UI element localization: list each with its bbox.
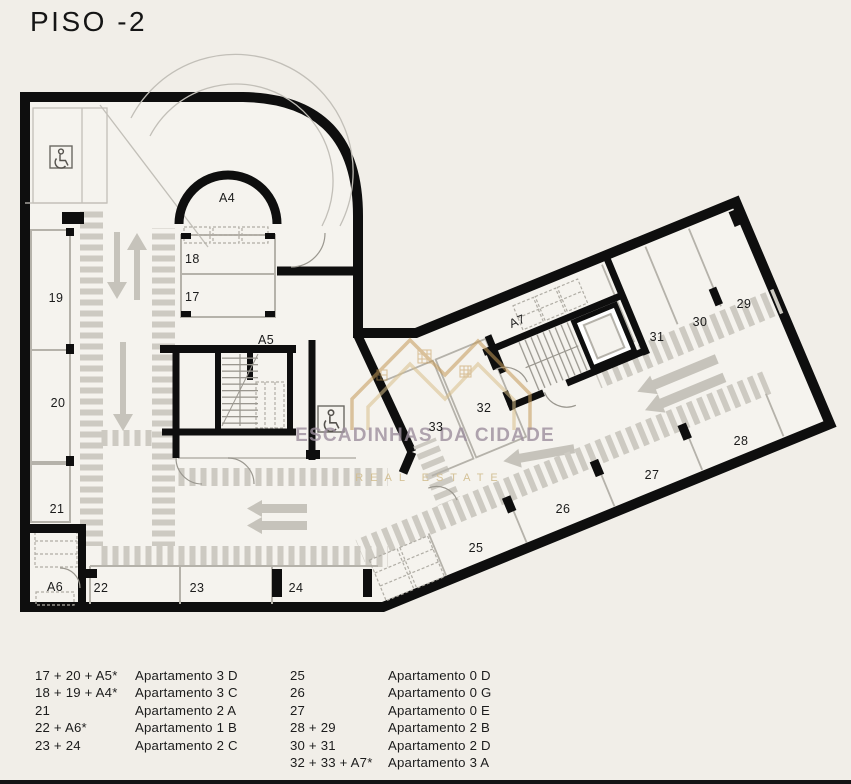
spot-label-19: 19 (49, 291, 64, 305)
spot-label-27: 27 (645, 468, 660, 482)
spot-label-17: 17 (185, 290, 200, 304)
legend-row: 27 Apartamento 0 E (290, 702, 491, 719)
spot-label-29: 29 (737, 297, 752, 311)
legend-row: 32 + 33 + A7* Apartamento 3 A (290, 754, 491, 771)
spot-label-23: 23 (190, 581, 205, 595)
legend-apartment: Apartamento 0 G (388, 684, 491, 701)
legend-row: 21 Apartamento 2 A (35, 702, 238, 719)
legend-row: 22 + A6* Apartamento 1 B (35, 719, 238, 736)
legend-apartment: Apartamento 0 D (388, 667, 491, 684)
spot-label-31: 31 (650, 330, 665, 344)
spot-label-20: 20 (51, 396, 66, 410)
legend-apartment: Apartamento 3 C (135, 684, 238, 701)
legend-row: 28 + 29 Apartamento 2 B (290, 719, 491, 736)
legend-spots: 21 (35, 702, 135, 719)
legend-row: 25 Apartamento 0 D (290, 667, 491, 684)
legend-spots: 17 + 20 + A5* (35, 667, 135, 684)
legend-row: 23 + 24 Apartamento 2 C (35, 737, 238, 754)
legend-apartment: Apartamento 2 D (388, 737, 491, 754)
legend-spots: 23 + 24 (35, 737, 135, 754)
spot-label-33: 33 (429, 420, 444, 434)
bottom-edge-bar (0, 780, 851, 784)
legend-column-1: 17 + 20 + A5* Apartamento 3 D 18 + 19 + … (35, 667, 238, 754)
room-label-a6: A6 (47, 580, 63, 594)
spot-label-21: 21 (50, 502, 65, 516)
legend-apartment: Apartamento 3 D (135, 667, 238, 684)
legend-spots: 32 + 33 + A7* (290, 754, 388, 771)
legend-spots: 30 + 31 (290, 737, 388, 754)
spot-label-26: 26 (556, 502, 571, 516)
legend-apartment: Apartamento 0 E (388, 702, 490, 719)
legend-spots: 28 + 29 (290, 719, 388, 736)
watermark-name: ESCADINHAS DA CIDADE (295, 425, 555, 446)
legend-apartment: Apartamento 1 B (135, 719, 237, 736)
legend-row: 26 Apartamento 0 G (290, 684, 491, 701)
floor-plan-page: PISO -2 (0, 0, 851, 784)
legend-apartment: Apartamento 2 C (135, 737, 238, 754)
room-label-a5: A5 (258, 333, 274, 347)
legend-spots: 25 (290, 667, 388, 684)
legend-spots: 22 + A6* (35, 719, 135, 736)
legend-apartment: Apartamento 3 A (388, 754, 489, 771)
spot-label-22: 22 (94, 581, 109, 595)
stairs-a5 (222, 354, 258, 426)
legend-row: 17 + 20 + A5* Apartamento 3 D (35, 667, 238, 684)
legend-spots: 26 (290, 684, 388, 701)
legend-row: 18 + 19 + A4* Apartamento 3 C (35, 684, 238, 701)
spot-label-30: 30 (693, 315, 708, 329)
legend-spots: 18 + 19 + A4* (35, 684, 135, 701)
legend-row: 30 + 31 Apartamento 2 D (290, 737, 491, 754)
spot-label-32: 32 (477, 401, 492, 415)
legend-column-2: 25 Apartamento 0 D 26 Apartamento 0 G 27… (290, 667, 491, 771)
legend-spots: 27 (290, 702, 388, 719)
room-label-a4: A4 (219, 191, 235, 205)
legend-apartment: Apartamento 2 A (135, 702, 236, 719)
spot-label-28: 28 (734, 434, 749, 448)
legend-apartment: Apartamento 2 B (388, 719, 490, 736)
watermark-tagline: REAL ESTATE (355, 472, 505, 484)
spot-label-25: 25 (469, 541, 484, 555)
spot-label-24: 24 (289, 581, 304, 595)
spot-label-18: 18 (185, 252, 200, 266)
